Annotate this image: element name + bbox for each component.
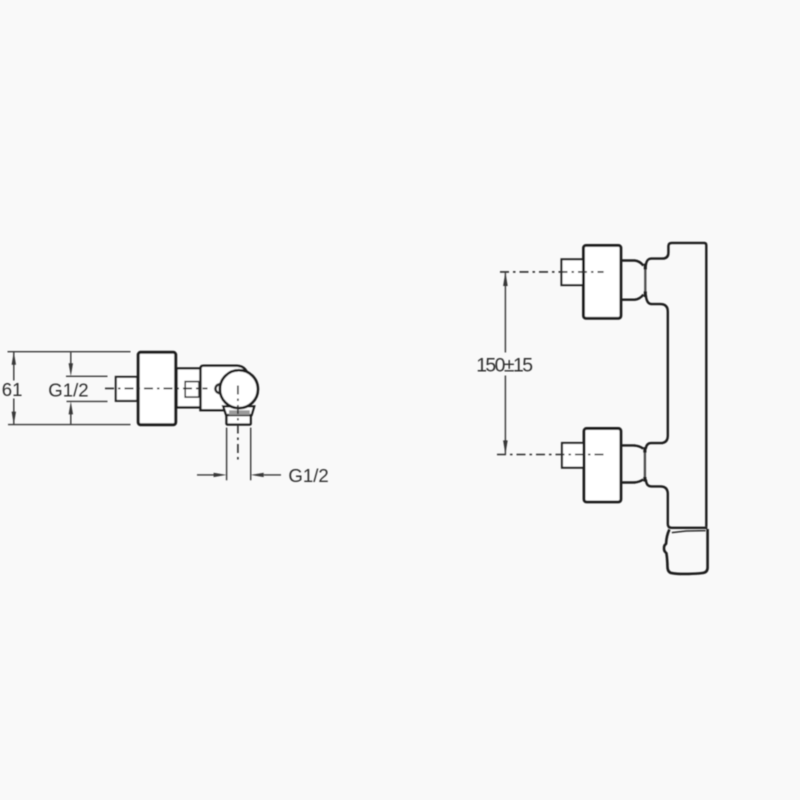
svg-text:G1/2: G1/2 [48, 379, 88, 400]
svg-text:G1/2: G1/2 [288, 465, 328, 486]
svg-text:150±15: 150±15 [476, 354, 532, 376]
svg-text:61: 61 [2, 379, 23, 400]
